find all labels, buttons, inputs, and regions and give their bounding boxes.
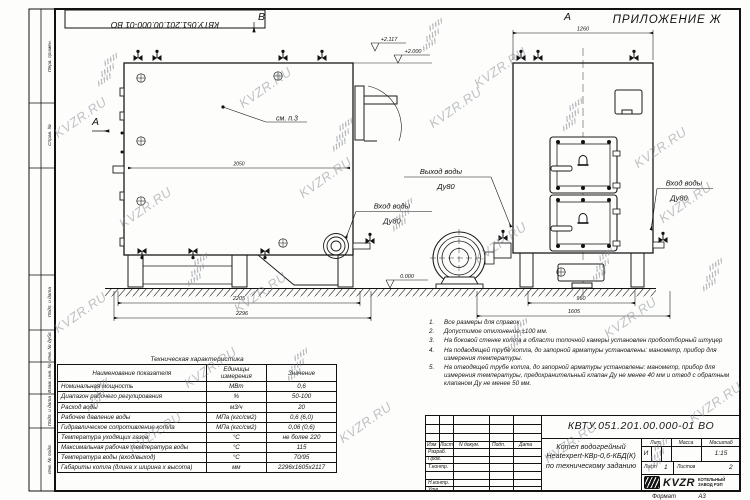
outlet-label: Выход воды <box>420 167 463 176</box>
format-value: А3 <box>697 494 706 500</box>
side-supports <box>128 255 353 287</box>
tb-col-data: Дата <box>519 443 532 448</box>
appendix-title: ПРИЛОЖЕНИЕ Ж <box>613 14 722 26</box>
kvzr-logo-icon <box>644 476 660 489</box>
stamp-cell-label: Взам. инв. № <box>47 363 53 393</box>
spec-unit: МВт <box>206 382 266 392</box>
table-row: Расход водым3/ч20 <box>58 402 337 412</box>
note-item: 5.На отводящей трубе котла, до запорной … <box>429 364 733 389</box>
tb-sheets-value: 2 <box>729 465 733 472</box>
company-name-line2: ЗАВОД РЭП <box>698 482 723 487</box>
note-text: На подводящей трубе котла, до запорной а… <box>444 347 733 363</box>
spec-name: Температура воды (вход/выход) <box>58 453 207 463</box>
tb-product-line3: по техническому заданию <box>546 461 636 470</box>
tb-row-utv: Утв. <box>428 488 439 493</box>
format-row: Формат А3 <box>652 494 706 500</box>
tb-sheet-label: Лист <box>644 465 657 470</box>
spec-name: Расход воды <box>58 402 207 412</box>
spec-unit: МПа (кгс/см2) <box>206 422 266 432</box>
table-row: Диапазон рабочего регулирования%50-100 <box>58 392 337 402</box>
note-item: 3.На боковой стенке котла в области топо… <box>429 337 733 345</box>
spec-name: Максимальная рабочая температура воды <box>58 443 207 453</box>
notes-list: 1.Все размеры для справок 2.Допустимое о… <box>429 319 733 389</box>
tb-sheet-value: 1 <box>664 465 668 472</box>
stamp-cell-label: Инв. № подл. <box>47 444 53 474</box>
spec-table-block: Техническая характеристика Наименование … <box>57 356 337 473</box>
tb-lit-value: И <box>641 451 651 458</box>
tb-scale-value: 1:15 <box>701 451 741 458</box>
boiler-body-side <box>124 63 353 255</box>
tb-col-izm: Изм <box>427 443 436 448</box>
note-item: 4.На подводящей трубе котла, до запорной… <box>429 347 733 363</box>
tb-sheets-label: Листов <box>677 465 695 470</box>
tb-col-podp: Подп. <box>492 443 505 448</box>
dim-1605: 1605 <box>568 309 581 315</box>
spec-col-value: Значение <box>267 365 337 382</box>
tb-col-list: Лист <box>440 443 453 448</box>
stamp-cell-label: Справ. № <box>47 124 53 146</box>
spec-unit: °С <box>206 453 266 463</box>
ground-line <box>105 289 656 297</box>
view-b-label: В <box>258 11 265 23</box>
spec-col-unit: Единицы измерения <box>206 365 266 382</box>
tb-row-razrab: Разраб. <box>428 450 446 455</box>
table-row: Температура воды (вход/выход)°С70/95 <box>58 453 337 463</box>
tb-mass-label: Масса <box>671 441 701 446</box>
note-text: Все размеры для справок <box>444 319 733 327</box>
note-text: Допустимое отклонение ±100 мм. <box>444 328 733 336</box>
outlet-valve <box>499 230 508 241</box>
inlet-front-dn: Ду80 <box>669 194 688 203</box>
spec-value: не более 220 <box>267 432 337 442</box>
tb-row-nkontr: Н.контр. <box>428 481 449 486</box>
spec-value: 50-100 <box>267 392 337 402</box>
tb-product-line2: Heatexpert-КВр-0,6-КБД(К) <box>546 451 636 460</box>
elev-2000: +2.000 <box>405 49 423 55</box>
spec-table-title: Техническая характеристика <box>57 356 337 363</box>
spec-value: 0,6 <box>267 382 337 392</box>
spec-name: Рабочее давление воды <box>58 412 207 422</box>
inlet-dn: Ду80 <box>382 217 401 226</box>
note-number: 5. <box>429 364 444 389</box>
table-row: Гидравлическое сопротивление котлаМПа (к… <box>58 422 337 432</box>
spec-name: Габариты котла (длина х ширина х высота) <box>58 463 207 473</box>
table-row: Рабочее давление водыМПа (кгс/см2)0,6 (6… <box>58 412 337 422</box>
tb-doc-number: КВТУ.051.201.00.000-01 ВО <box>541 421 741 432</box>
note-number: 4. <box>429 347 444 363</box>
spec-value: 0,06 (0,6) <box>267 422 337 432</box>
note-number: 1. <box>429 319 444 327</box>
dim-2205: 2205 <box>232 296 246 302</box>
spec-unit: МПа (кгс/см2) <box>206 412 266 422</box>
tb-scale-label: Масштаб <box>701 441 741 446</box>
side-door-assembly <box>355 86 401 141</box>
note-item: 2.Допустимое отклонение ±100 мм. <box>429 328 733 336</box>
inlet-front-label: Вход воды <box>666 179 703 188</box>
table-row: Габариты котла (длина х ширина х высота)… <box>58 463 337 473</box>
spec-unit: мм <box>206 463 266 473</box>
top-hatch <box>615 90 642 114</box>
spec-unit: °С <box>206 432 266 442</box>
doc-number-top-text: КВТУ.051.201.00.000-01 ВО <box>110 20 219 30</box>
table-row: Номинальная мощностьМВт0,6 <box>58 382 337 392</box>
spec-value: 0,6 (6,0) <box>267 412 337 422</box>
spec-unit: °С <box>206 443 266 453</box>
note-text: На боковой стенке котла в области топочн… <box>444 337 733 345</box>
dim-960: 960 <box>576 296 586 302</box>
kvzr-logo-text: KVZR <box>663 477 695 489</box>
stamp-column: Перв. примен. Справ. № Подп. и дата Инв.… <box>47 40 53 474</box>
spec-header-row: Наименование показателя Единицы измерени… <box>58 365 337 382</box>
spec-unit: % <box>206 392 266 402</box>
note-text: На отводящей трубе котла, до запорной ар… <box>444 364 733 389</box>
spec-value: 20 <box>267 402 337 412</box>
note-number: 2. <box>429 328 444 336</box>
table-row: Температура уходящих газов°Сне более 220 <box>58 432 337 442</box>
spec-unit: м3/ч <box>206 402 266 412</box>
spec-value: 115 <box>267 443 337 453</box>
stamp-cell-label: Подп. и дата <box>47 396 53 426</box>
spec-name: Температура уходящих газов <box>58 432 207 442</box>
note-number: 3. <box>429 337 444 345</box>
doc-number-topbox: КВТУ.051.201.00.000-01 ВО <box>65 10 265 30</box>
boiler-front-view <box>513 48 664 296</box>
spec-name: Номинальная мощность <box>58 382 207 392</box>
spec-name: Диапазон рабочего регулирования <box>58 392 207 402</box>
stamp-cell-label: Подп. и дата <box>47 287 53 317</box>
spec-value: 2296х1605х2117 <box>267 463 337 473</box>
tb-col-doc: N докум. <box>459 443 479 448</box>
drawing-sheet: Перв. примен. Справ. № Подп. и дата Инв.… <box>0 0 750 500</box>
table-row: Максимальная рабочая температура воды°С1… <box>58 443 337 453</box>
boiler-side-view <box>113 63 401 287</box>
spec-col-name: Наименование показателя <box>58 365 207 382</box>
view-a-side-label: А <box>91 116 99 128</box>
tb-row-tkontr: Т.контр. <box>428 465 448 470</box>
spec-value: 70/95 <box>267 453 337 463</box>
note-item: 1.Все размеры для справок <box>429 319 733 327</box>
company-brand: KVZR КОТЕЛЬНЫЙ ЗАВОД РЭП <box>644 476 725 489</box>
callout-see-p3: см. п.3 <box>276 116 298 123</box>
outlet-dn: Ду80 <box>436 182 455 191</box>
elev-2117: +2.117 <box>381 37 399 43</box>
dim-2296: 2296 <box>235 311 249 317</box>
title-block: Изм Лист N докум. Подп. Дата Разраб. Про… <box>425 415 740 491</box>
tb-lit-label: Лит. <box>641 441 671 446</box>
stamp-cell-label: Инв. № дубл. <box>47 331 53 361</box>
front-supports <box>520 253 644 288</box>
dim-1260: 1260 <box>577 27 590 33</box>
inlet-label: Вход воды <box>374 202 411 211</box>
elev-0000: 0.000 <box>400 274 415 280</box>
tb-row-prov: Пров. <box>428 457 441 462</box>
tb-product-line1: Котел водогрейный <box>556 442 625 451</box>
spec-table: Наименование показателя Единицы измерени… <box>57 364 337 473</box>
stamp-cell-label: Перв. примен. <box>47 40 53 72</box>
spec-name: Гидравлическое сопротивление котла <box>58 422 207 432</box>
dim-2050: 2050 <box>232 162 244 168</box>
view-a-front-label: А <box>563 11 571 23</box>
elevation-marks: +2.117 +2.000 0.000 <box>353 37 432 288</box>
format-label: Формат <box>652 494 676 500</box>
